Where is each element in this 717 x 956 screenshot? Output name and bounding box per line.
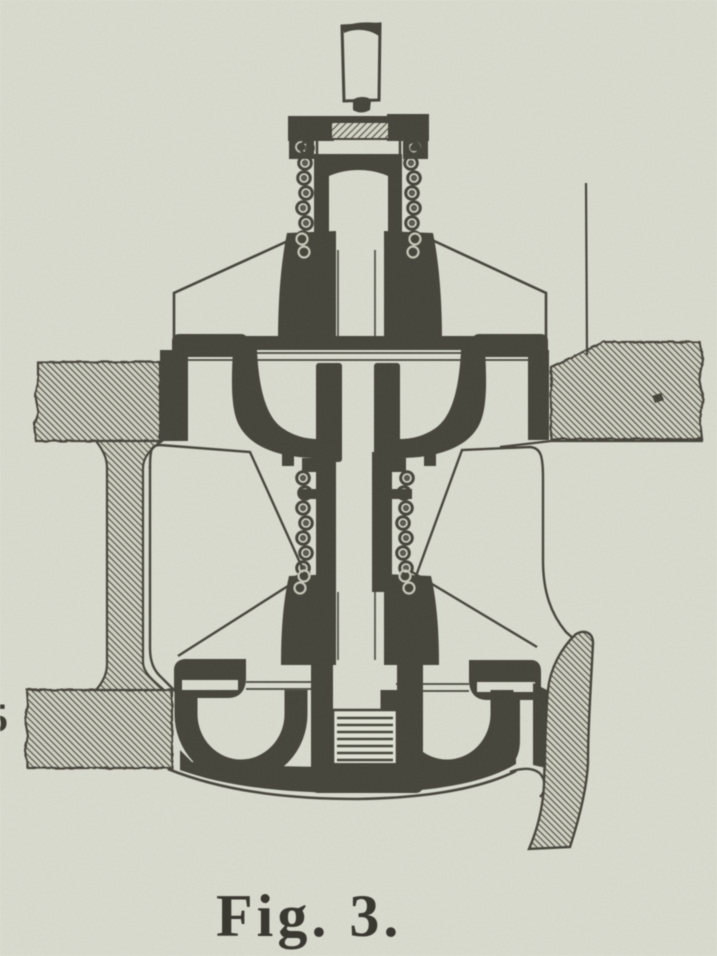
svg-text:5: 5	[0, 695, 8, 740]
svg-text:Fig. 3.: Fig. 3.	[216, 883, 402, 949]
